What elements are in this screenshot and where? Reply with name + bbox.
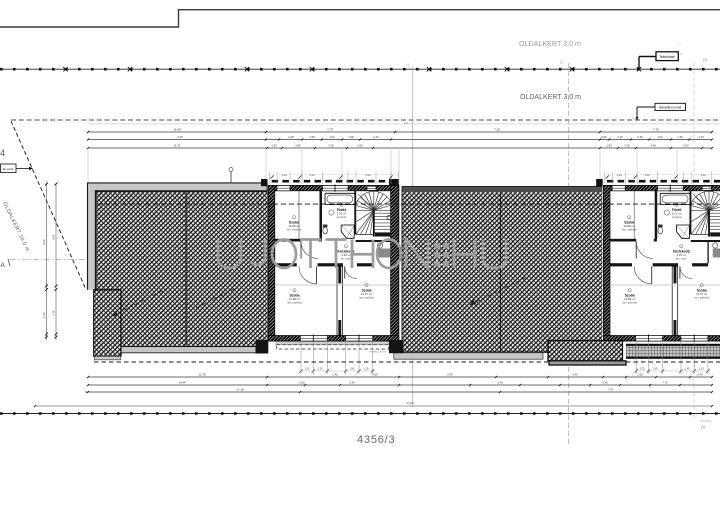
svg-text:16.45: 16.45 (173, 127, 181, 131)
svg-text:10a: 10a (404, 121, 409, 125)
svg-text:1.30: 1.30 (281, 173, 287, 177)
svg-text:lam. parketta: lam. parketta (287, 301, 302, 304)
svg-text:1.50: 1.50 (42, 312, 46, 318)
svg-text:2.10: 2.10 (617, 135, 623, 139)
svg-text:1.48: 1.48 (348, 135, 354, 139)
svg-text:0.45: 0.45 (601, 135, 607, 139)
svg-text:1.35: 1.35 (318, 368, 323, 371)
svg-text:2.48: 2.48 (637, 135, 643, 139)
svg-text:2.48: 2.48 (288, 135, 294, 139)
svg-text:17.18: 17.18 (237, 387, 244, 391)
svg-text:2.60: 2.60 (637, 372, 643, 376)
svg-text:3.18: 3.18 (624, 143, 630, 147)
svg-text:Telekhatár: Telekhatár (659, 55, 676, 59)
svg-text:lam. parketta: lam. parketta (359, 296, 374, 299)
svg-text:1.50: 1.50 (52, 310, 56, 316)
svg-text:11.70: 11.70 (174, 143, 181, 147)
svg-text:4.19: 4.19 (372, 372, 378, 376)
svg-text:1.35: 1.35 (653, 368, 658, 371)
svg-text:lam. parketta: lam. parketta (622, 301, 637, 304)
svg-text:1.80: 1.80 (350, 368, 355, 371)
svg-text:19.44: 19.44 (179, 380, 186, 384)
svg-text:3.00: 3.00 (42, 239, 46, 245)
svg-text:2.02: 2.02 (657, 135, 663, 139)
svg-text:2.02: 2.02 (329, 135, 335, 139)
svg-text:2.40: 2.40 (497, 380, 503, 384)
svg-text:1.20: 1.20 (640, 368, 645, 371)
svg-text:lam. park.: lam. park. (676, 257, 687, 260)
svg-text:2.60: 2.60 (683, 143, 689, 147)
svg-text:2.40: 2.40 (349, 380, 355, 384)
svg-text:1.30: 1.30 (617, 173, 623, 177)
svg-text:2.40: 2.40 (332, 372, 338, 376)
svg-text:A: A (1, 262, 6, 269)
svg-text:Beépítési vonal: Beépítési vonal (659, 106, 681, 110)
svg-text:kerámia: kerámia (337, 216, 347, 219)
svg-text:2.23: 2.23 (645, 173, 651, 177)
svg-text:□: □ (680, 52, 682, 56)
svg-text:1.30: 1.30 (271, 143, 277, 147)
svg-text:4356/3: 4356/3 (357, 434, 395, 446)
svg-text:2.43: 2.43 (373, 135, 379, 139)
svg-text:7.70: 7.70 (662, 380, 668, 384)
svg-text:–––: ––– (699, 64, 704, 68)
svg-text:kerámia: kerámia (672, 216, 682, 219)
svg-text:OLDALKERT 3.0 m: OLDALKERT 3.0 m (519, 39, 581, 48)
svg-text:1.35: 1.35 (364, 368, 369, 371)
svg-text:3.60: 3.60 (365, 173, 371, 177)
svg-text:lam. parketta: lam. parketta (287, 228, 302, 231)
svg-text:1.48: 1.48 (677, 135, 683, 139)
svg-text:(·): (·) (406, 63, 409, 67)
svg-text:12.78: 12.78 (199, 372, 206, 376)
svg-text:lam. park.: lam. park. (341, 257, 352, 260)
svg-text:3.48: 3.48 (650, 143, 656, 147)
svg-text:7.25: 7.25 (494, 127, 500, 131)
svg-text:1.98: 1.98 (309, 135, 315, 139)
svg-text:OLDALKERT 3.0 m: OLDALKERT 3.0 m (520, 92, 581, 101)
svg-text:1.20: 1.20 (305, 368, 310, 371)
svg-text:3.00: 3.00 (52, 234, 56, 240)
svg-text:2.60: 2.60 (357, 143, 363, 147)
svg-text:3.18: 3.18 (328, 143, 334, 147)
svg-text:1.80: 1.80 (685, 368, 690, 371)
svg-text:3.60: 3.60 (701, 173, 707, 177)
svg-text:2.40: 2.40 (697, 372, 703, 376)
svg-text:17.84: 17.84 (407, 401, 414, 405)
svg-text:4: 4 (0, 148, 5, 158)
svg-text:0.45: 0.45 (447, 372, 453, 376)
svg-text:2.43: 2.43 (698, 135, 704, 139)
svg-text:·–·–·: ·–·–· (676, 42, 682, 46)
svg-text:1.35: 1.35 (699, 368, 704, 371)
svg-text:0.45: 0.45 (602, 380, 608, 384)
svg-text:(1): (1) (701, 425, 705, 429)
svg-text:2.23: 2.23 (309, 173, 315, 177)
svg-text:9.45: 9.45 (177, 135, 183, 139)
svg-text:(·): (·) (560, 60, 563, 64)
svg-text:lam. parketta: lam. parketta (694, 296, 709, 299)
svg-text:7.70: 7.70 (607, 387, 613, 391)
svg-text:lam. parketta: lam. parketta (622, 228, 637, 231)
svg-text:1.83: 1.83 (606, 143, 612, 147)
svg-text:7.70: 7.70 (327, 127, 333, 131)
svg-text:2.40: 2.40 (572, 372, 578, 376)
svg-text:2.05: 2.05 (295, 143, 301, 147)
svg-text:(2): (2) (703, 58, 707, 62)
svg-text:7.70: 7.70 (653, 127, 659, 131)
svg-text:2.60: 2.60 (299, 380, 305, 384)
